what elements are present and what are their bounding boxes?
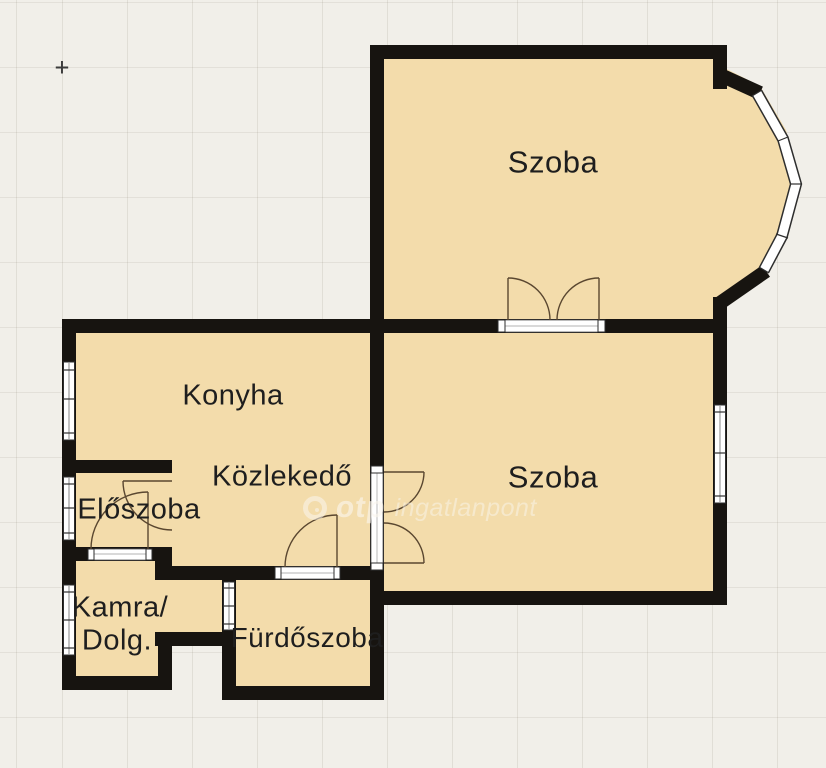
room-label-furdoszoba: Fürdőszoba xyxy=(231,624,384,652)
wall-furdoszoba-bottom xyxy=(222,686,384,700)
wall-szoba-right-bottom xyxy=(370,591,727,605)
room-label-szoba-top: Szoba xyxy=(508,147,598,178)
room-label-kozlekedo: Közlekedő xyxy=(212,463,352,492)
wall-konyha-eloszoba-stub xyxy=(76,460,172,473)
wall-middle xyxy=(62,319,727,333)
room-label-konyha: Konyha xyxy=(182,382,283,411)
floorplan-canvas: + xyxy=(0,0,826,768)
window-konyha xyxy=(64,362,75,440)
window-eloszoba xyxy=(64,477,75,540)
wall-spine xyxy=(370,45,384,700)
wall-top xyxy=(370,45,727,59)
window-szoba-right xyxy=(715,405,726,503)
room-label-kamra-line2: Dolg. xyxy=(82,627,152,656)
room-label-szoba-right: Szoba xyxy=(508,462,598,493)
room-label-eloszoba: Előszoba xyxy=(77,496,200,525)
wall-kamra-right xyxy=(158,632,172,690)
room-floor-szoba-top xyxy=(384,59,713,320)
wall-kamra-bottom xyxy=(62,676,172,690)
room-floor-konyha-kozlekedo xyxy=(76,333,370,566)
wall-step-block xyxy=(155,547,172,580)
room-label-kamra-line1: Kamra/ xyxy=(72,594,168,623)
wall-furdoszoba-top xyxy=(158,566,384,580)
